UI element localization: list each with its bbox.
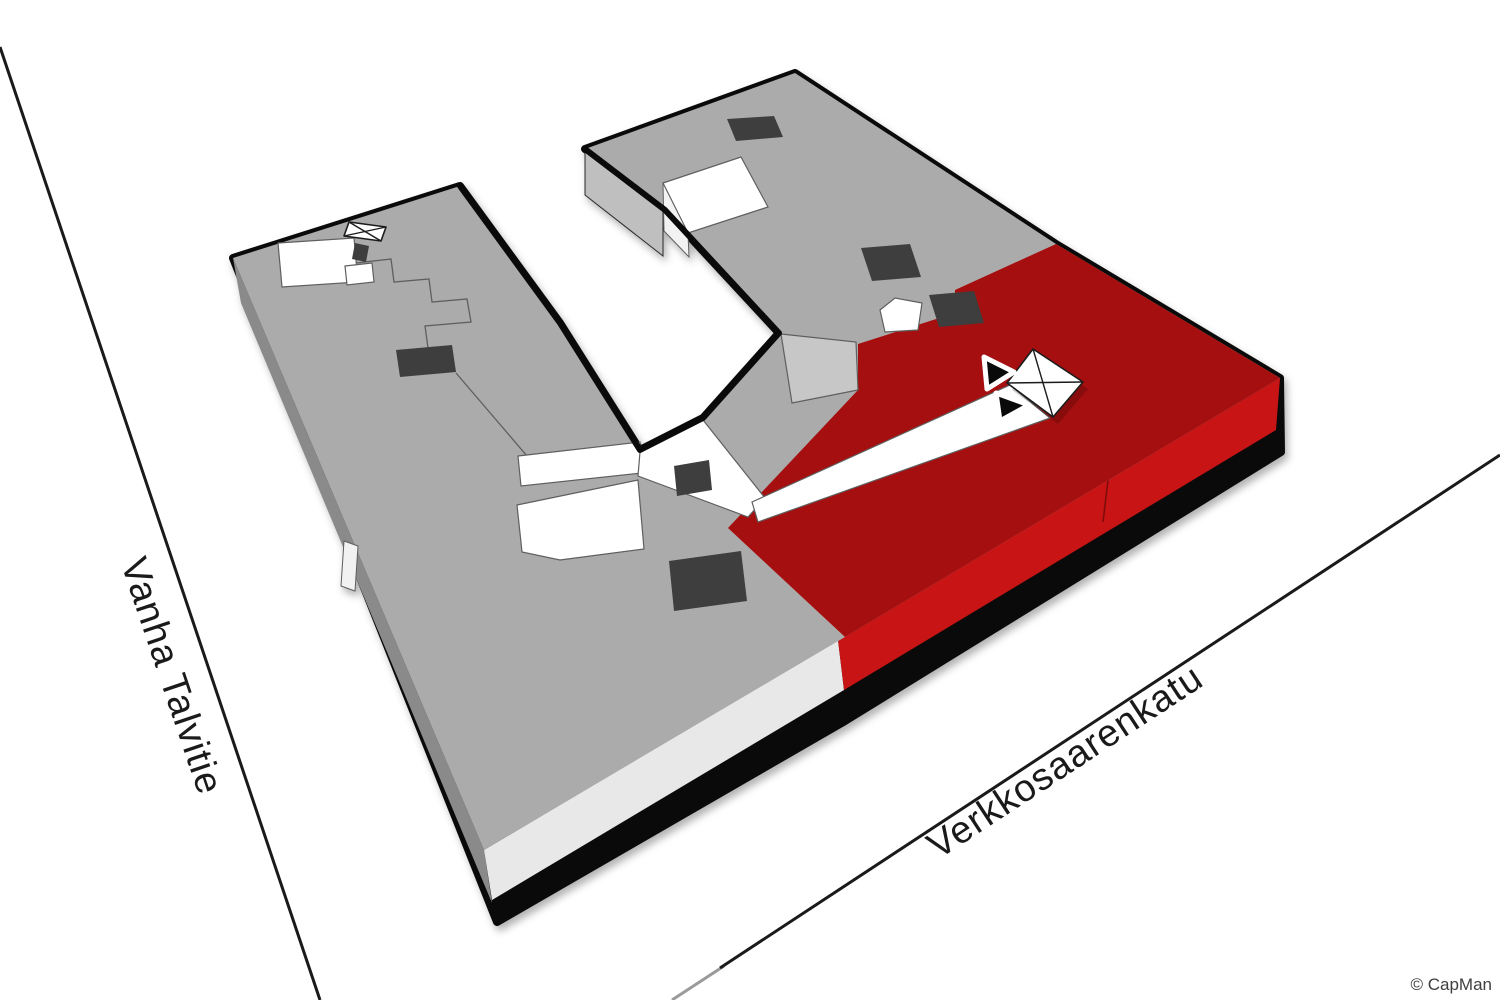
roof-opening-left-wing-top <box>352 243 369 262</box>
white-notch-left-wing-step <box>345 263 374 285</box>
roof-opening-corridor <box>674 460 712 496</box>
street-line-vanha-talvitie <box>0 47 320 1000</box>
site-plan-diagram: Vanha Talvitie Verkkosaarenkatu <box>0 0 1500 1000</box>
roof-patch-light <box>781 334 858 403</box>
roof-opening-left-wing <box>396 345 456 377</box>
building <box>233 73 1281 922</box>
roof-opening-south <box>669 551 747 611</box>
roof-opening-north-1 <box>727 116 783 141</box>
street-label-verkkosaarenkatu: Verkkosaarenkatu <box>920 657 1211 868</box>
west-edge-tab <box>341 541 358 591</box>
street-label-vanha-talvitie: Vanha Talvitie <box>112 552 231 800</box>
street-line-verkkosaarenkatu-fade <box>672 966 724 1000</box>
copyright-text: © CapMan <box>1410 975 1492 994</box>
